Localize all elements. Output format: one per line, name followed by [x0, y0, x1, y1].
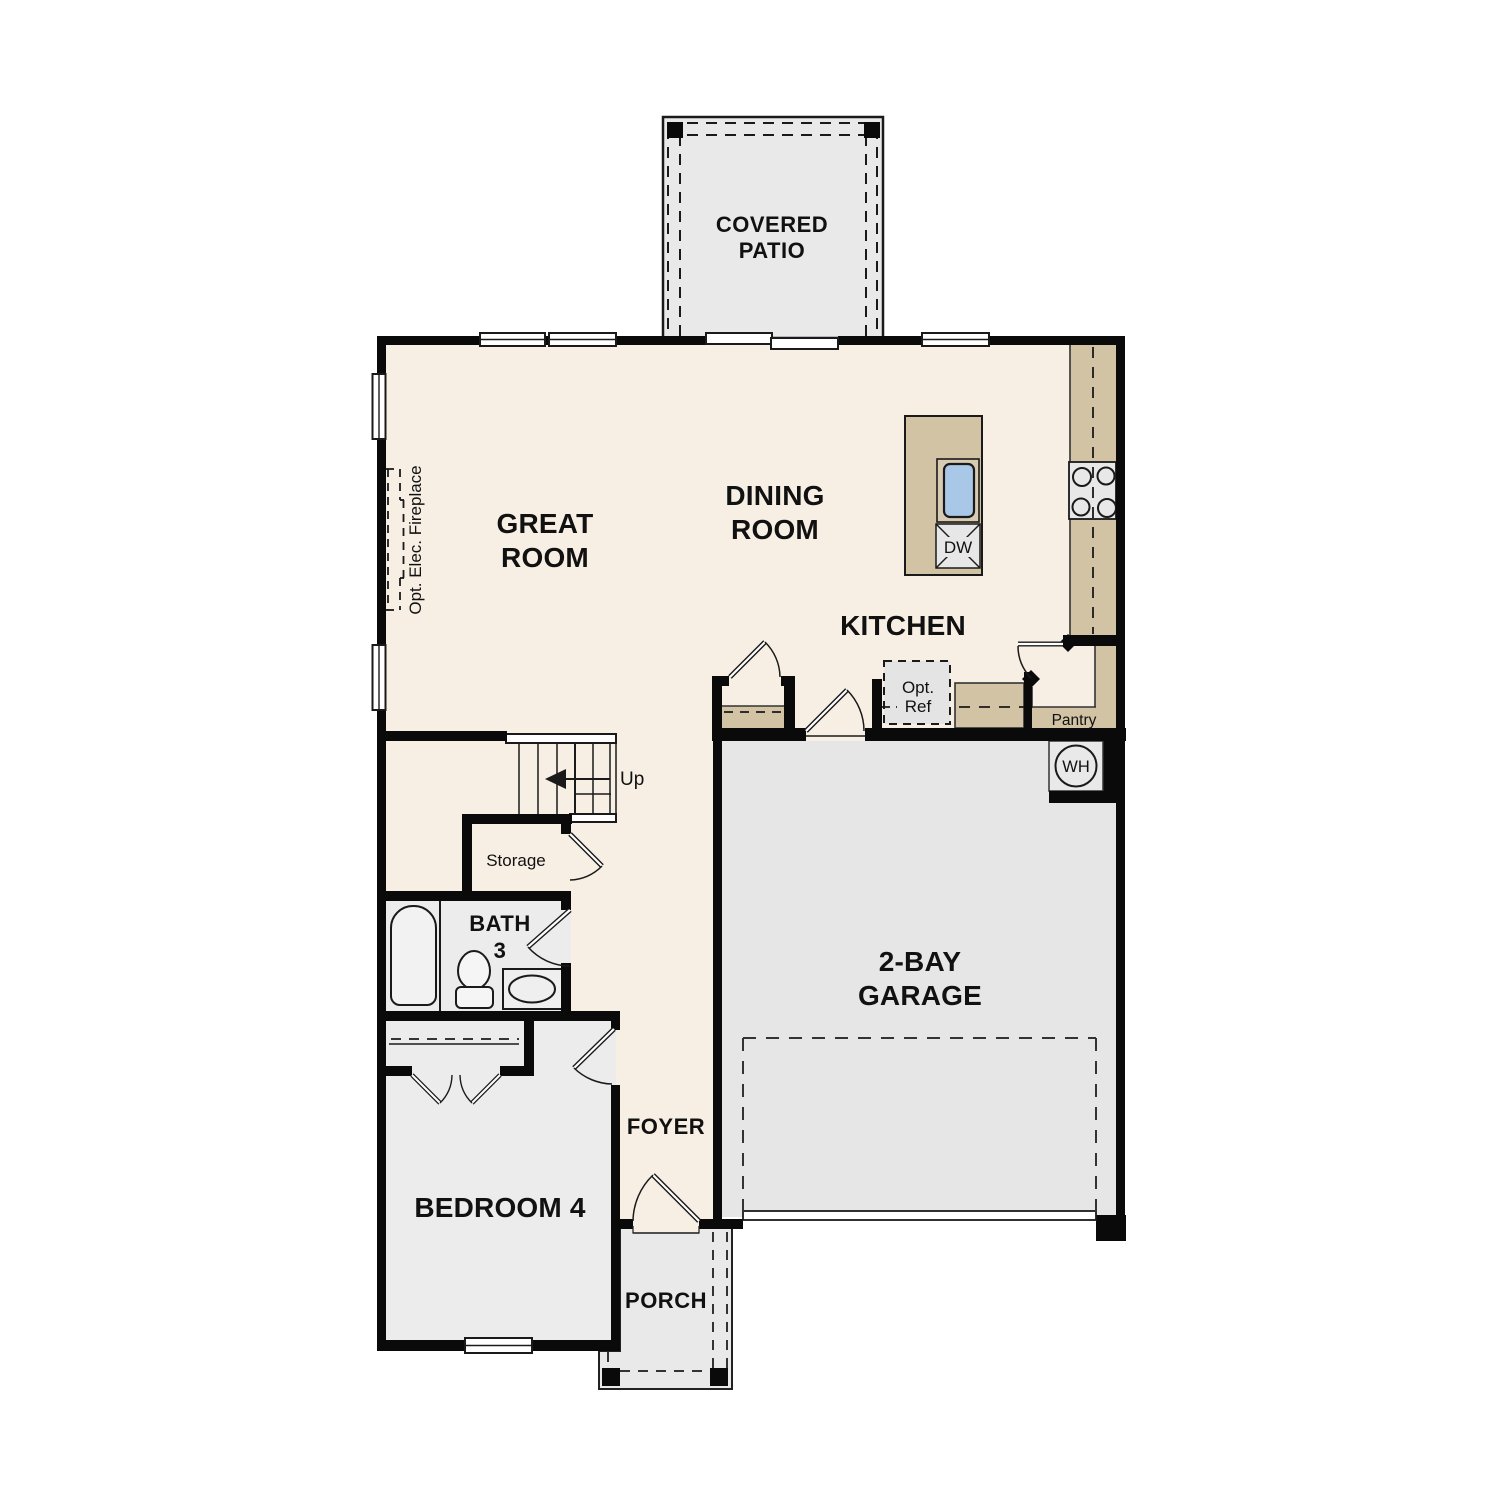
- svg-text:GARAGE: GARAGE: [858, 980, 982, 1011]
- svg-text:COVERED: COVERED: [716, 212, 828, 237]
- svg-text:Storage: Storage: [486, 851, 546, 870]
- svg-text:PATIO: PATIO: [739, 238, 805, 263]
- svg-text:Up: Up: [620, 769, 644, 790]
- svg-text:2-BAY: 2-BAY: [879, 946, 962, 977]
- svg-text:Opt.: Opt.: [902, 678, 934, 697]
- svg-text:Opt. Elec. Fireplace: Opt. Elec. Fireplace: [406, 465, 425, 614]
- svg-text:3: 3: [494, 938, 507, 963]
- svg-text:FOYER: FOYER: [627, 1114, 705, 1139]
- svg-text:PORCH: PORCH: [625, 1288, 707, 1313]
- svg-text:ROOM: ROOM: [731, 514, 819, 545]
- svg-text:BEDROOM 4: BEDROOM 4: [414, 1192, 586, 1223]
- svg-text:Ref: Ref: [905, 697, 932, 716]
- svg-text:GREAT: GREAT: [497, 508, 594, 539]
- svg-text:BATH: BATH: [469, 911, 530, 936]
- svg-text:Pantry: Pantry: [1052, 712, 1097, 729]
- svg-text:KITCHEN: KITCHEN: [840, 610, 966, 641]
- svg-text:ROOM: ROOM: [501, 542, 589, 573]
- svg-text:WH: WH: [1062, 758, 1090, 776]
- svg-text:DW: DW: [944, 538, 972, 557]
- svg-text:DINING: DINING: [725, 480, 824, 511]
